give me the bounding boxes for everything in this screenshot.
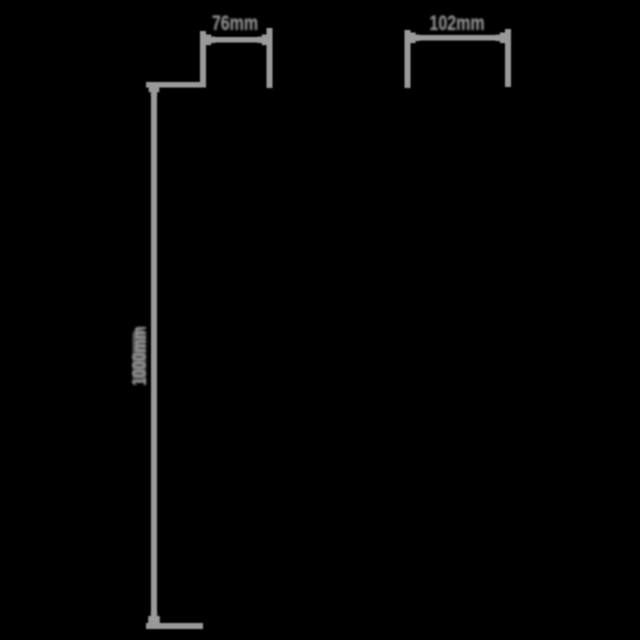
svg-text:1000mm: 1000mm <box>128 326 151 386</box>
svg-text:102mm: 102mm <box>429 12 484 36</box>
svg-text:76mm: 76mm <box>212 12 258 36</box>
